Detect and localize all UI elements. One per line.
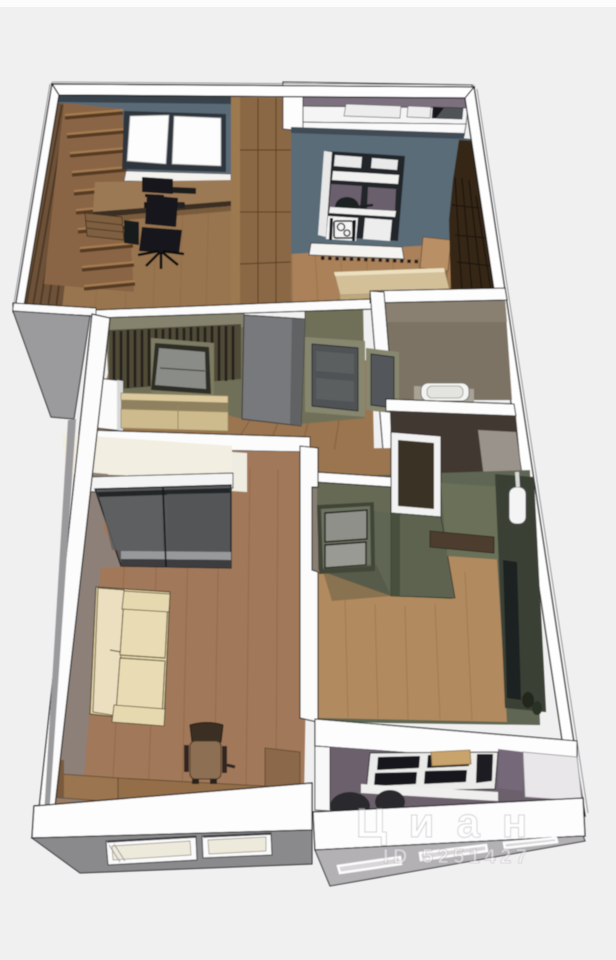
svg-text:ID 5251427: ID 5251427: [383, 846, 531, 868]
svg-text:Циан: Циан: [356, 799, 549, 846]
